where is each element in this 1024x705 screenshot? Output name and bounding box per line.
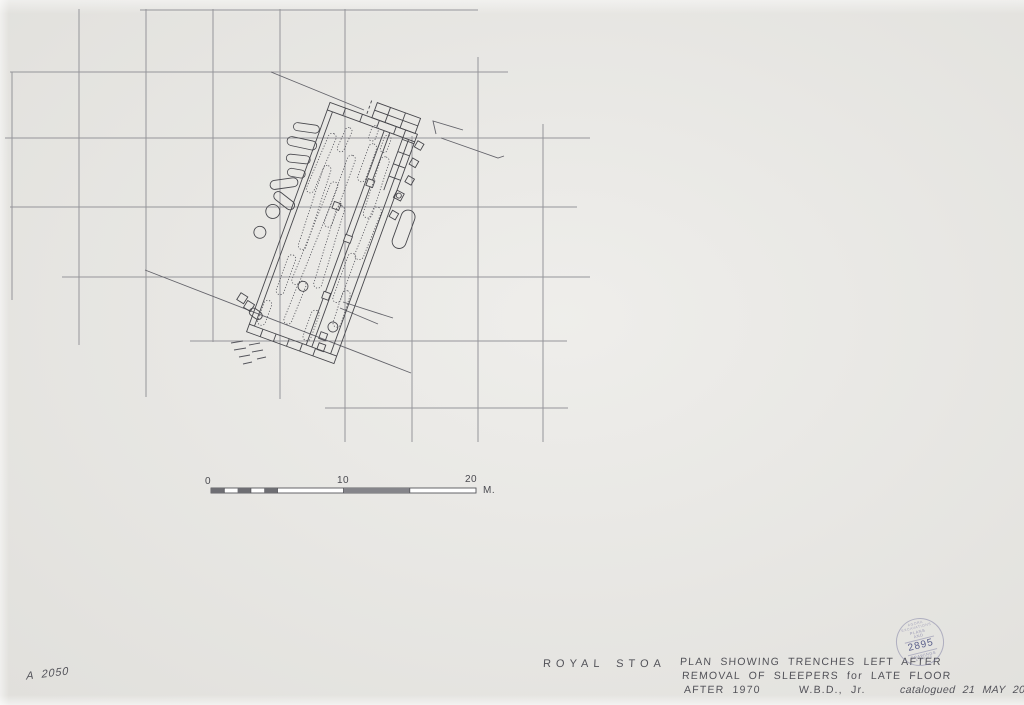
caption-author: W.B.D., Jr. <box>799 684 866 696</box>
caption-line-2: REMOVAL OF SLEEPERS for LATE FLOOR <box>682 670 952 682</box>
scale-tick-10: 10 <box>337 475 349 486</box>
site-title: ROYAL STOA <box>543 658 667 670</box>
scanned-drawing-sheet: 0 10 20 M. A 2050 ROYAL STOA PLAN SHOWIN… <box>0 0 1024 705</box>
scale-bar <box>211 488 476 493</box>
plan-drawing <box>0 0 1024 705</box>
caption-catalog-note: catalogued 21 MAY 2003 R.C.A <box>900 684 1024 696</box>
survey-grid <box>5 9 590 442</box>
trench-outlines <box>256 110 408 351</box>
column-fragments <box>250 169 305 247</box>
column-drum <box>264 202 282 220</box>
east-pier-blocks <box>377 140 440 251</box>
caption-date: AFTER 1970 <box>684 684 761 696</box>
scale-tick-0: 0 <box>205 476 211 487</box>
north-extension <box>366 101 420 134</box>
caption-line-3: AFTER 1970 W.B.D., Jr. catalogued 21 MAY… <box>684 684 1024 696</box>
stoa-plan <box>218 77 447 372</box>
stoa-walls <box>247 102 418 363</box>
scarp-dashes <box>231 341 266 364</box>
column-drum <box>252 225 267 240</box>
south-interior-features <box>280 280 349 354</box>
scale-tick-20: 20 <box>465 474 477 485</box>
trench-lobes <box>275 117 324 182</box>
scale-unit: M. <box>483 485 495 496</box>
